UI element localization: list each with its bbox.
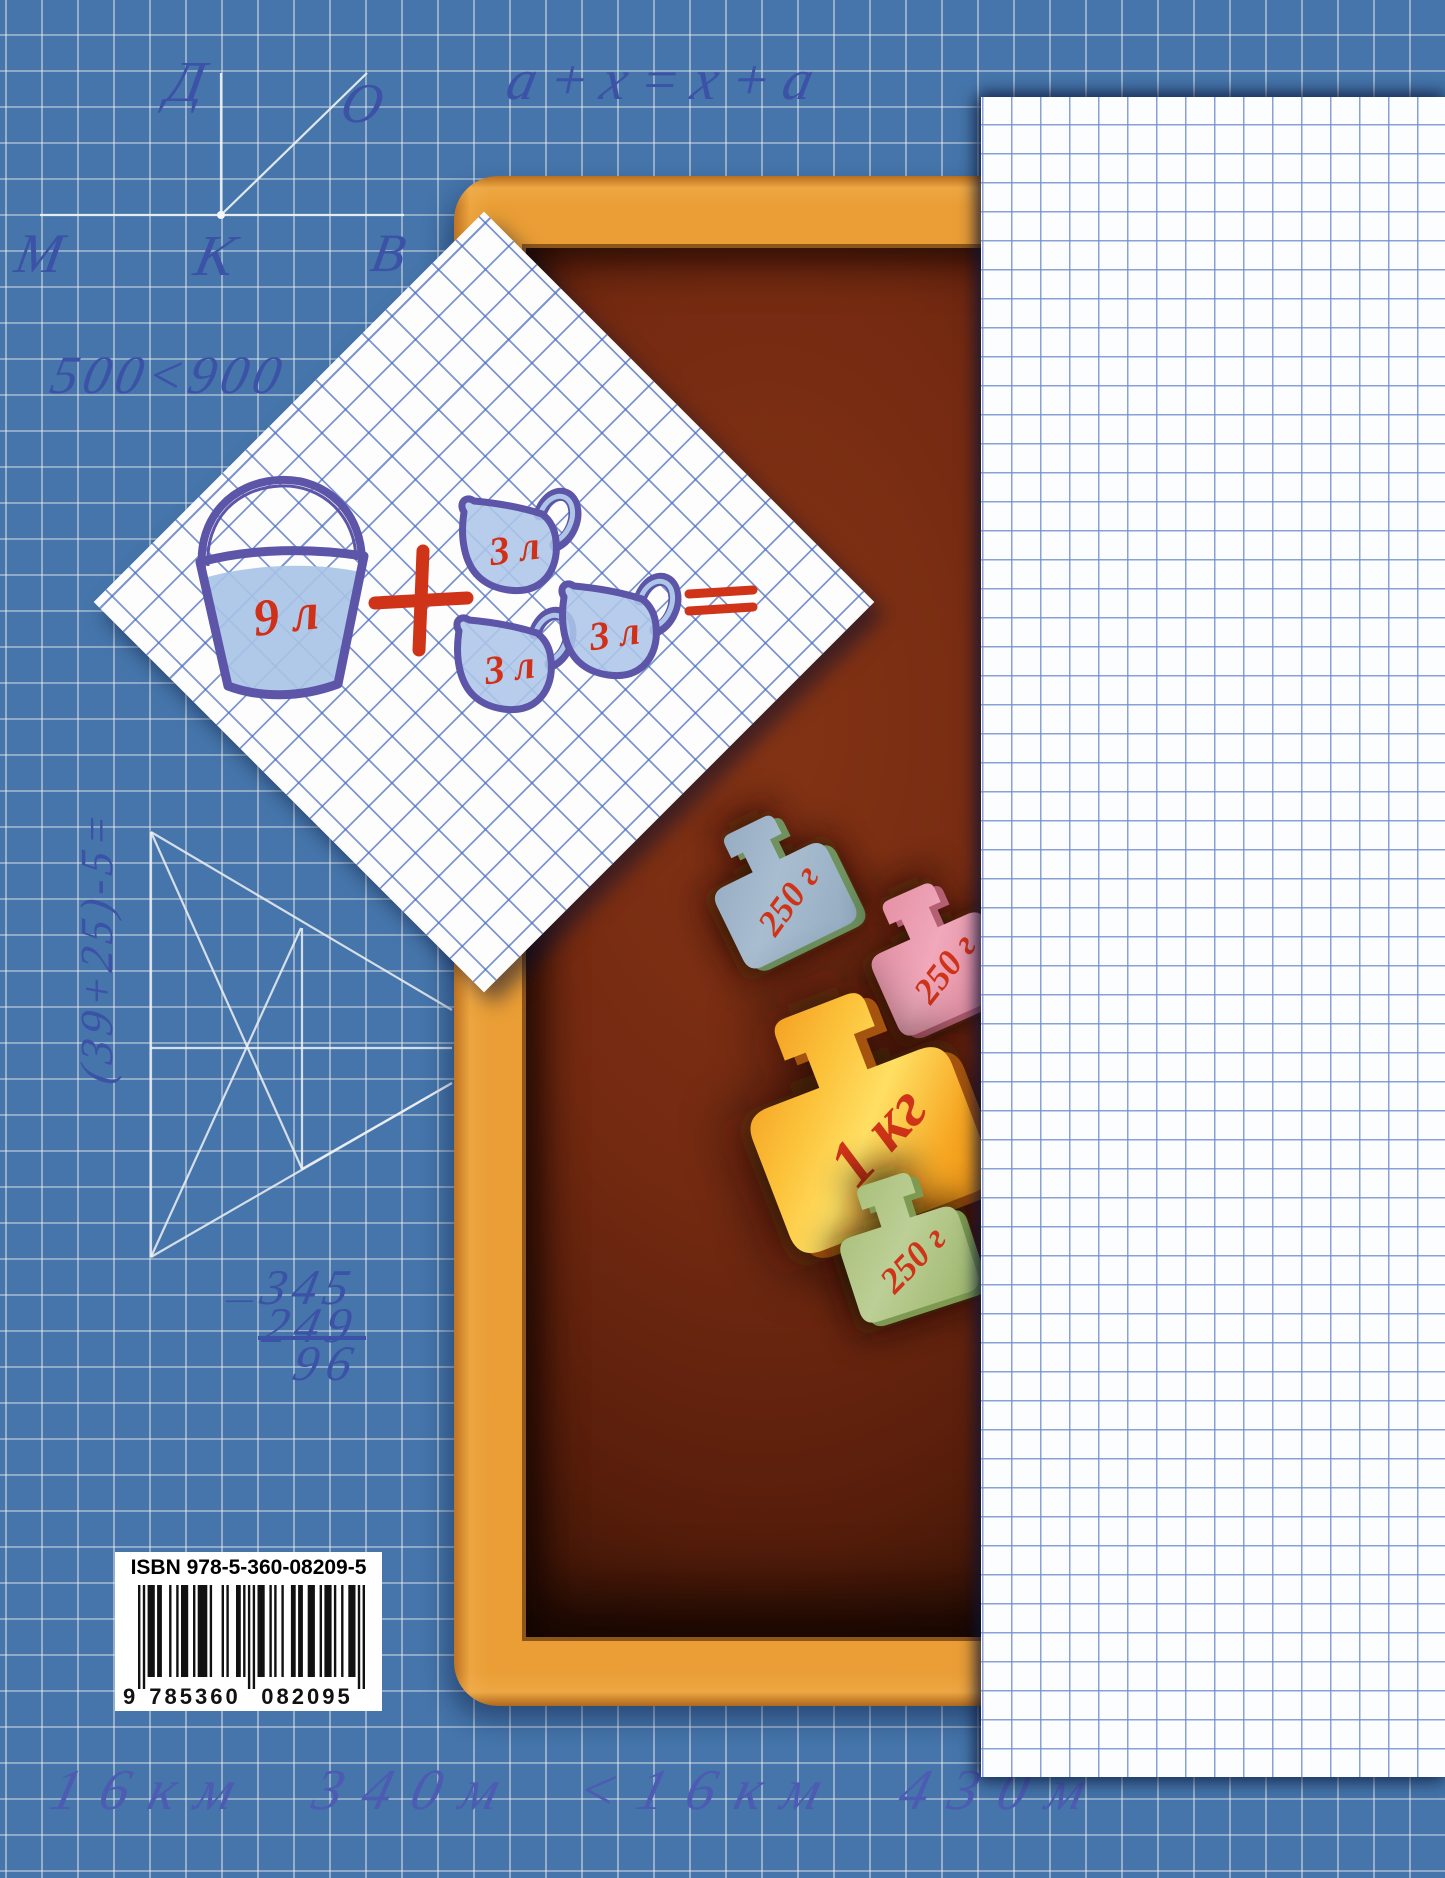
svg-text:785360: 785360 xyxy=(149,1684,240,1709)
svg-text:9: 9 xyxy=(123,1684,135,1709)
svg-text:9 л: 9 л xyxy=(250,583,322,648)
svg-text:082095: 082095 xyxy=(261,1684,352,1709)
